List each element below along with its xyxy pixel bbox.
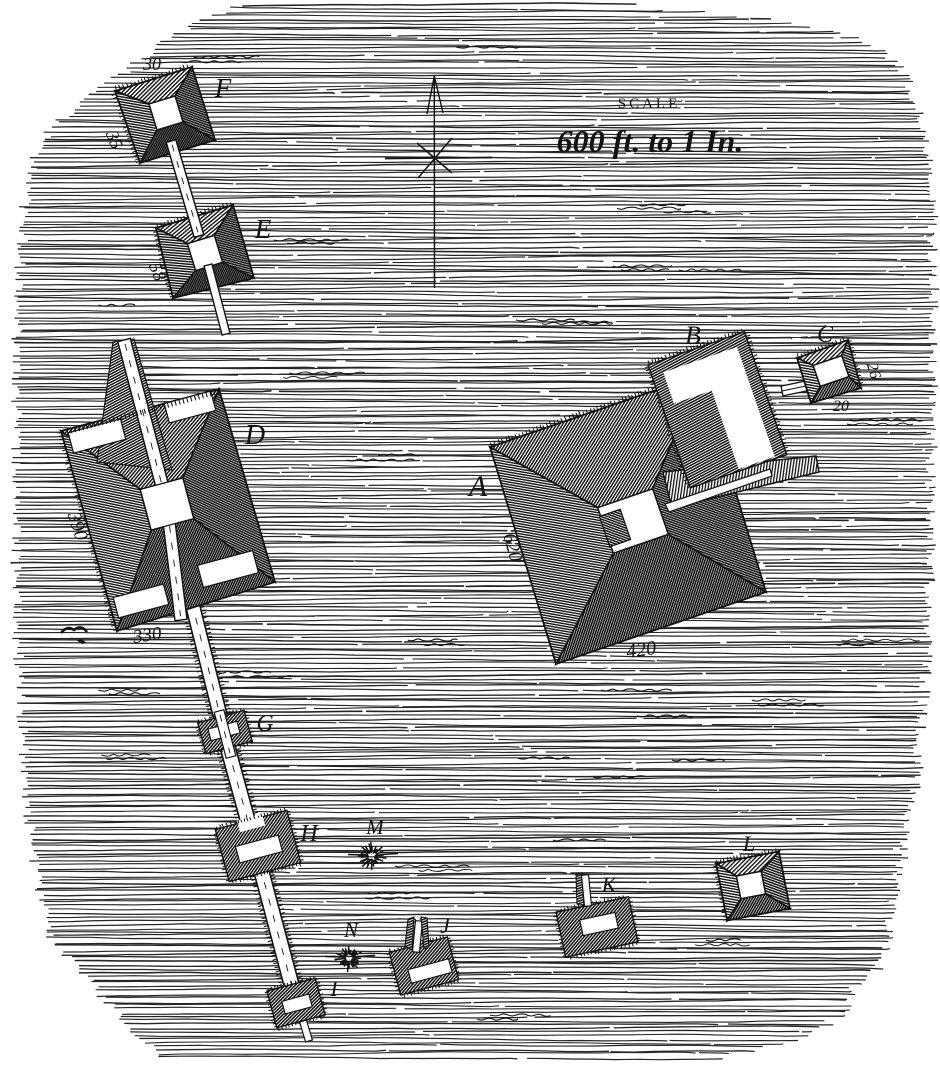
svg-text:A: A (467, 470, 488, 503)
svg-text:F: F (214, 73, 232, 103)
svg-text:SCALE: SCALE (618, 96, 681, 112)
svg-text:600 ft. to 1 In.: 600 ft. to 1 In. (557, 123, 744, 159)
svg-text:M: M (365, 815, 385, 839)
svg-text:G: G (256, 711, 273, 737)
svg-text:H: H (299, 821, 319, 847)
svg-text:L: L (742, 831, 755, 856)
svg-text:20: 20 (833, 398, 849, 415)
svg-text:J: J (440, 913, 451, 938)
svg-text:E: E (254, 214, 272, 244)
svg-text:N: N (343, 918, 359, 942)
svg-text:K: K (601, 872, 618, 897)
svg-text:30: 30 (142, 54, 161, 74)
svg-text:C: C (817, 322, 834, 348)
svg-text:420: 420 (625, 637, 658, 663)
svg-text:B: B (685, 321, 701, 350)
svg-text:330: 330 (131, 623, 164, 648)
svg-text:D: D (244, 420, 265, 451)
